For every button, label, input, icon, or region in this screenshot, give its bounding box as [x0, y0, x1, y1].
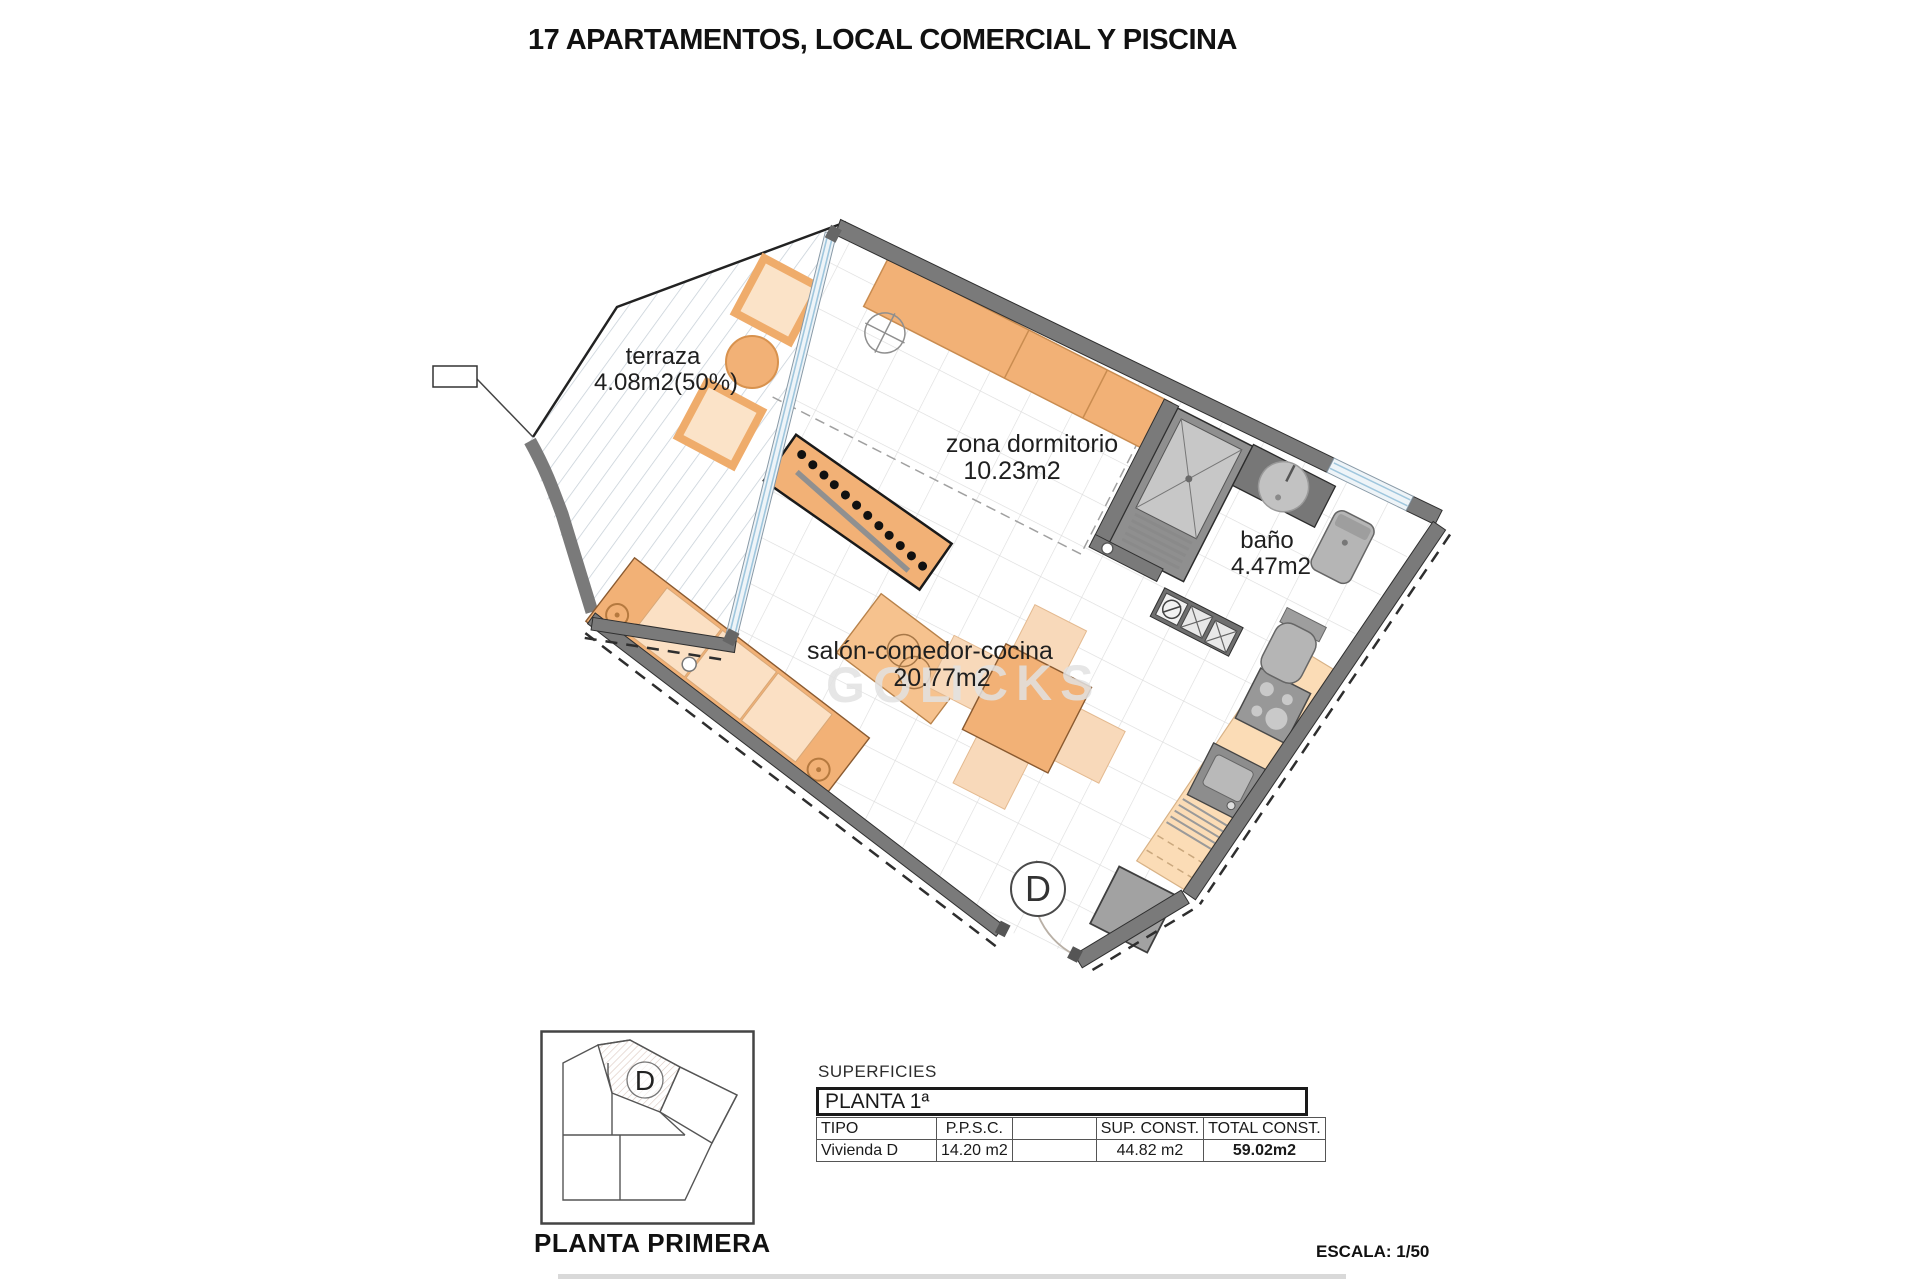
scale-note: ESCALA: 1/50	[1316, 1242, 1429, 1262]
label-salon: salón-comedor-cocina	[807, 637, 1053, 665]
label-bano-area: 4.47m2	[1231, 553, 1311, 580]
cell-total-const: 59.02m2	[1204, 1140, 1326, 1162]
header-tipo: TIPO	[817, 1118, 937, 1140]
svg-text:D: D	[1025, 868, 1051, 909]
terrace-planter	[433, 366, 477, 387]
header-sup-const: SUP. CONST.	[1096, 1118, 1203, 1140]
surfaces-floor-box: PLANTA 1ª	[816, 1087, 1308, 1116]
label-dormitorio: zona dormitorio	[946, 430, 1118, 458]
key-plan-caption: PLANTA PRIMERA	[534, 1228, 758, 1259]
label-salon-area: 20.77m2	[893, 664, 990, 692]
label-terraza: terraza	[626, 343, 701, 370]
bottom-edge-strip	[558, 1274, 1346, 1279]
cell-vivienda: Vivienda D	[817, 1140, 937, 1162]
key-plan-unit-letter: D	[635, 1065, 655, 1096]
surfaces-header-row: TIPO P.P.S.C. SUP. CONST. TOTAL CONST.	[817, 1118, 1326, 1140]
cell-empty	[1012, 1140, 1096, 1162]
cell-sup-const: 44.82 m2	[1096, 1140, 1203, 1162]
label-terraza-area: 4.08m2(50%)	[594, 369, 738, 396]
surfaces-table: TIPO P.P.S.C. SUP. CONST. TOTAL CONST. V…	[816, 1117, 1326, 1162]
key-plan: D	[540, 1030, 755, 1226]
header-ppsc: P.P.S.C.	[937, 1118, 1013, 1140]
door-label: D	[1011, 862, 1065, 916]
label-dormitorio-area: 10.23m2	[963, 457, 1060, 485]
header-empty	[1012, 1118, 1096, 1140]
label-bano: baño	[1240, 527, 1293, 554]
cell-ppsc: 14.20 m2	[937, 1140, 1013, 1162]
header-total-const: TOTAL CONST.	[1204, 1118, 1326, 1140]
floor-plan-page: 17 APARTAMENTOS, LOCAL COMERCIAL Y PISCI…	[0, 0, 1920, 1280]
surfaces-section-label: SUPERFICIES	[818, 1062, 937, 1082]
surfaces-data-row: Vivienda D 14.20 m2 44.82 m2 59.02m2	[817, 1140, 1326, 1162]
